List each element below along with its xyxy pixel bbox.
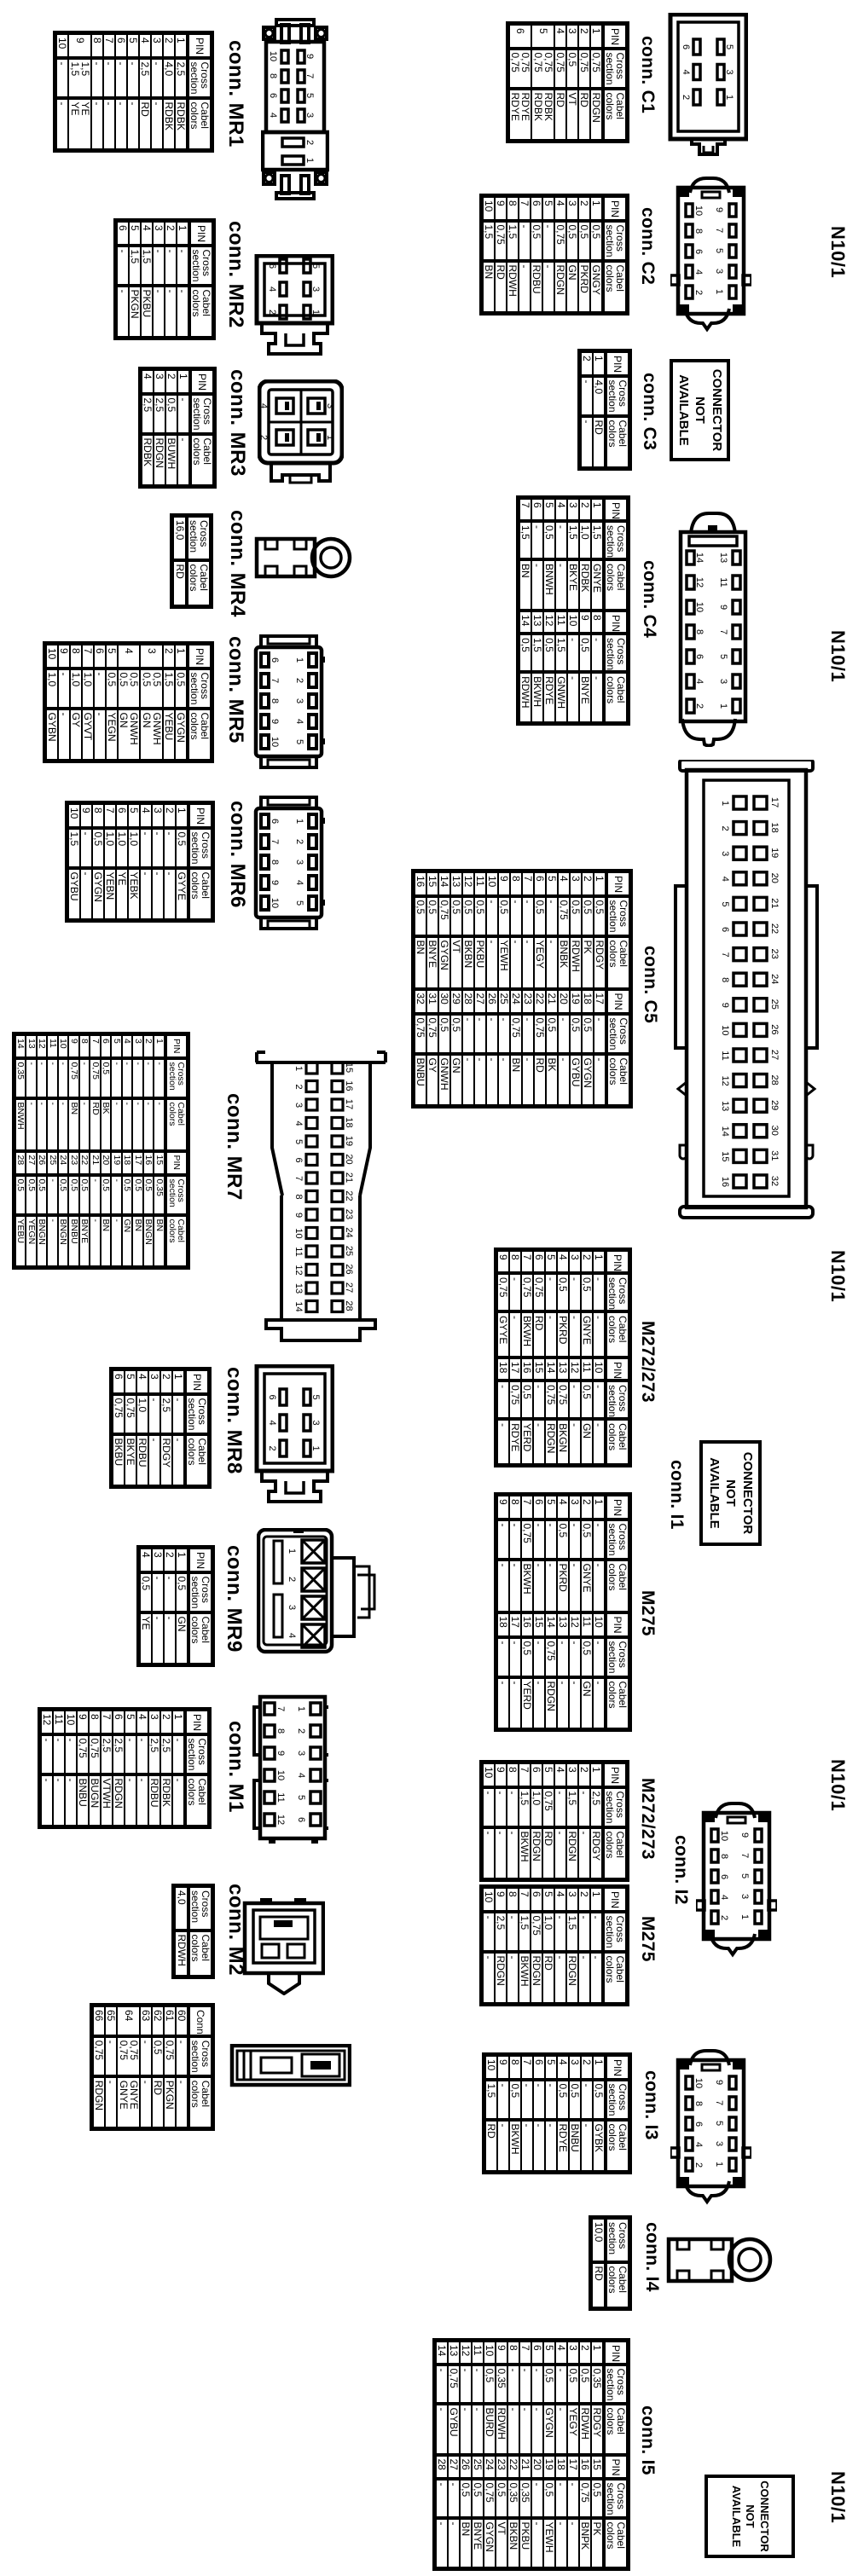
svg-text:9: 9 <box>293 1213 304 1218</box>
svg-text:2: 2 <box>258 435 269 440</box>
svg-text:10: 10 <box>270 898 280 908</box>
svg-text:4: 4 <box>693 269 704 275</box>
svg-text:18: 18 <box>769 822 780 832</box>
svg-text:6: 6 <box>267 1394 277 1399</box>
svg-text:8: 8 <box>275 1728 286 1734</box>
svg-text:4: 4 <box>267 1420 277 1425</box>
svg-text:9: 9 <box>714 2080 724 2085</box>
svg-text:5: 5 <box>739 1873 750 1878</box>
svg-text:11: 11 <box>293 1247 304 1256</box>
svg-text:15: 15 <box>344 1062 354 1073</box>
svg-text:7: 7 <box>718 629 728 634</box>
svg-text:2: 2 <box>720 826 730 831</box>
svg-text:2: 2 <box>693 290 704 295</box>
svg-text:1: 1 <box>304 158 315 163</box>
svg-text:3: 3 <box>296 1751 306 1756</box>
svg-text:1: 1 <box>310 310 321 315</box>
svg-text:8: 8 <box>693 2101 704 2106</box>
svg-text:5: 5 <box>296 1795 306 1800</box>
svg-text:2: 2 <box>294 839 304 844</box>
svg-text:4: 4 <box>293 1120 304 1126</box>
svg-text:6: 6 <box>693 249 704 254</box>
svg-text:17: 17 <box>344 1099 354 1109</box>
svg-text:12: 12 <box>694 577 705 588</box>
svg-text:8: 8 <box>719 1854 729 1859</box>
svg-text:3: 3 <box>310 287 321 292</box>
svg-text:22: 22 <box>769 923 780 934</box>
svg-text:5: 5 <box>714 2121 724 2126</box>
svg-text:10: 10 <box>270 737 280 747</box>
svg-text:4: 4 <box>720 877 730 882</box>
svg-text:32: 32 <box>769 1176 780 1186</box>
svg-text:6: 6 <box>694 654 705 659</box>
svg-text:11: 11 <box>718 577 728 587</box>
svg-text:4: 4 <box>694 679 705 684</box>
svg-text:24: 24 <box>344 1227 354 1237</box>
svg-text:10: 10 <box>268 51 278 61</box>
svg-text:2: 2 <box>719 1915 729 1920</box>
svg-text:2: 2 <box>267 1445 277 1450</box>
svg-text:18: 18 <box>344 1117 354 1127</box>
svg-text:9: 9 <box>739 1832 750 1838</box>
svg-text:4: 4 <box>296 1773 306 1778</box>
svg-text:23: 23 <box>344 1209 354 1219</box>
svg-text:1: 1 <box>714 289 724 294</box>
svg-text:13: 13 <box>718 553 728 563</box>
svg-text:2: 2 <box>293 1084 304 1089</box>
svg-text:4: 4 <box>294 719 304 724</box>
svg-text:24: 24 <box>769 974 780 984</box>
svg-text:14: 14 <box>694 553 705 563</box>
svg-text:6: 6 <box>296 1817 306 1822</box>
svg-text:10: 10 <box>719 1831 729 1841</box>
svg-text:8: 8 <box>720 977 730 982</box>
svg-text:27: 27 <box>769 1050 780 1060</box>
svg-text:15: 15 <box>720 1151 730 1161</box>
svg-text:1: 1 <box>310 1445 321 1450</box>
svg-text:8: 8 <box>268 73 278 78</box>
svg-text:28: 28 <box>769 1074 780 1085</box>
svg-text:4: 4 <box>681 69 691 74</box>
svg-text:1: 1 <box>739 1914 750 1919</box>
svg-text:3: 3 <box>294 860 304 865</box>
svg-text:9: 9 <box>304 54 315 59</box>
svg-text:7: 7 <box>270 678 280 683</box>
svg-text:2: 2 <box>294 678 304 683</box>
svg-text:29: 29 <box>769 1100 780 1110</box>
svg-text:7: 7 <box>304 73 315 78</box>
svg-text:16: 16 <box>344 1080 354 1091</box>
svg-text:1: 1 <box>720 801 730 806</box>
svg-text:6: 6 <box>268 93 278 98</box>
svg-text:2: 2 <box>296 1728 306 1734</box>
svg-text:1: 1 <box>724 95 734 100</box>
svg-text:8: 8 <box>293 1194 304 1199</box>
svg-text:2: 2 <box>694 703 705 709</box>
svg-text:21: 21 <box>769 898 780 908</box>
svg-text:10: 10 <box>694 602 705 612</box>
svg-text:26: 26 <box>344 1264 354 1274</box>
svg-text:11: 11 <box>720 1051 730 1060</box>
svg-text:10: 10 <box>275 1770 286 1780</box>
svg-text:3: 3 <box>714 2141 724 2146</box>
svg-text:31: 31 <box>769 1150 780 1161</box>
svg-text:25: 25 <box>344 1246 354 1256</box>
svg-text:5: 5 <box>718 654 728 659</box>
svg-text:5: 5 <box>293 1139 304 1144</box>
svg-text:7: 7 <box>270 839 280 844</box>
svg-text:13: 13 <box>720 1101 730 1111</box>
svg-text:30: 30 <box>769 1126 780 1136</box>
svg-text:9: 9 <box>718 605 728 610</box>
svg-text:3: 3 <box>310 1420 321 1425</box>
svg-text:1: 1 <box>293 1066 304 1071</box>
svg-text:12: 12 <box>720 1075 730 1085</box>
svg-text:8: 8 <box>694 629 705 634</box>
svg-text:14: 14 <box>720 1126 730 1137</box>
svg-text:3: 3 <box>293 1103 304 1108</box>
svg-text:10: 10 <box>693 206 704 216</box>
svg-text:5: 5 <box>720 901 730 906</box>
svg-text:6: 6 <box>293 1157 304 1162</box>
svg-text:3: 3 <box>287 1605 297 1610</box>
svg-text:4: 4 <box>268 113 278 118</box>
svg-text:4: 4 <box>258 403 269 408</box>
svg-text:22: 22 <box>344 1190 354 1201</box>
svg-text:8: 8 <box>693 229 704 234</box>
svg-text:1: 1 <box>294 819 304 824</box>
svg-text:11: 11 <box>275 1792 286 1802</box>
svg-text:1: 1 <box>287 1548 297 1554</box>
svg-text:6: 6 <box>693 2122 704 2127</box>
svg-text:6: 6 <box>681 44 691 49</box>
svg-text:21: 21 <box>344 1172 354 1183</box>
svg-text:20: 20 <box>769 873 780 883</box>
svg-text:1: 1 <box>714 2162 724 2167</box>
svg-text:1: 1 <box>325 435 335 440</box>
svg-text:1: 1 <box>294 657 304 663</box>
svg-text:19: 19 <box>344 1136 354 1146</box>
svg-text:3: 3 <box>739 1894 750 1899</box>
svg-text:5: 5 <box>310 263 321 269</box>
svg-text:1: 1 <box>718 703 728 709</box>
svg-text:8: 8 <box>270 860 280 865</box>
svg-text:4: 4 <box>294 880 304 885</box>
svg-text:2: 2 <box>681 95 691 100</box>
svg-text:3: 3 <box>724 69 734 74</box>
svg-text:6: 6 <box>270 657 280 663</box>
svg-text:5: 5 <box>310 1394 321 1399</box>
svg-text:3: 3 <box>718 679 728 684</box>
svg-text:20: 20 <box>344 1154 354 1164</box>
svg-text:2: 2 <box>693 2162 704 2168</box>
svg-text:9: 9 <box>720 1003 730 1008</box>
svg-text:12: 12 <box>275 1815 286 1825</box>
svg-text:13: 13 <box>293 1283 304 1294</box>
svg-text:9: 9 <box>270 719 280 724</box>
svg-text:9: 9 <box>270 880 280 885</box>
svg-text:12: 12 <box>293 1265 304 1275</box>
svg-text:3: 3 <box>720 851 730 856</box>
svg-text:28: 28 <box>344 1300 354 1311</box>
svg-text:16: 16 <box>720 1177 730 1187</box>
svg-text:2: 2 <box>304 140 315 145</box>
svg-text:5: 5 <box>304 93 315 98</box>
svg-text:3: 3 <box>714 269 724 274</box>
svg-text:6: 6 <box>719 1874 729 1879</box>
svg-text:9: 9 <box>714 207 724 212</box>
svg-text:8: 8 <box>270 698 280 703</box>
svg-text:1: 1 <box>296 1706 306 1711</box>
svg-text:10: 10 <box>720 1025 730 1035</box>
svg-text:25: 25 <box>769 999 780 1010</box>
svg-text:7: 7 <box>720 952 730 958</box>
svg-text:4: 4 <box>693 2142 704 2147</box>
svg-text:5: 5 <box>724 44 734 49</box>
svg-text:2: 2 <box>267 310 277 315</box>
svg-text:3: 3 <box>294 698 304 703</box>
svg-text:7: 7 <box>275 1706 286 1711</box>
svg-text:17: 17 <box>769 797 780 808</box>
svg-text:3: 3 <box>325 403 335 408</box>
svg-text:5: 5 <box>714 248 724 253</box>
svg-text:26: 26 <box>769 1024 780 1034</box>
svg-text:4: 4 <box>287 1633 297 1638</box>
svg-text:10: 10 <box>293 1228 304 1238</box>
svg-text:4: 4 <box>719 1895 729 1900</box>
svg-text:9: 9 <box>275 1751 286 1756</box>
svg-text:7: 7 <box>293 1176 304 1181</box>
svg-text:5: 5 <box>294 900 304 906</box>
svg-text:7: 7 <box>739 1853 750 1858</box>
svg-text:14: 14 <box>293 1301 304 1311</box>
svg-text:6: 6 <box>270 819 280 824</box>
svg-text:2: 2 <box>287 1577 297 1582</box>
svg-text:5: 5 <box>294 739 304 744</box>
svg-text:23: 23 <box>769 948 780 958</box>
svg-text:27: 27 <box>344 1282 354 1293</box>
svg-text:19: 19 <box>769 848 780 858</box>
svg-text:7: 7 <box>714 228 724 233</box>
svg-text:10: 10 <box>693 2078 704 2088</box>
svg-text:6: 6 <box>267 263 277 269</box>
svg-text:6: 6 <box>720 927 730 932</box>
svg-text:3: 3 <box>304 113 315 118</box>
svg-text:7: 7 <box>714 2100 724 2105</box>
svg-text:4: 4 <box>267 287 277 292</box>
